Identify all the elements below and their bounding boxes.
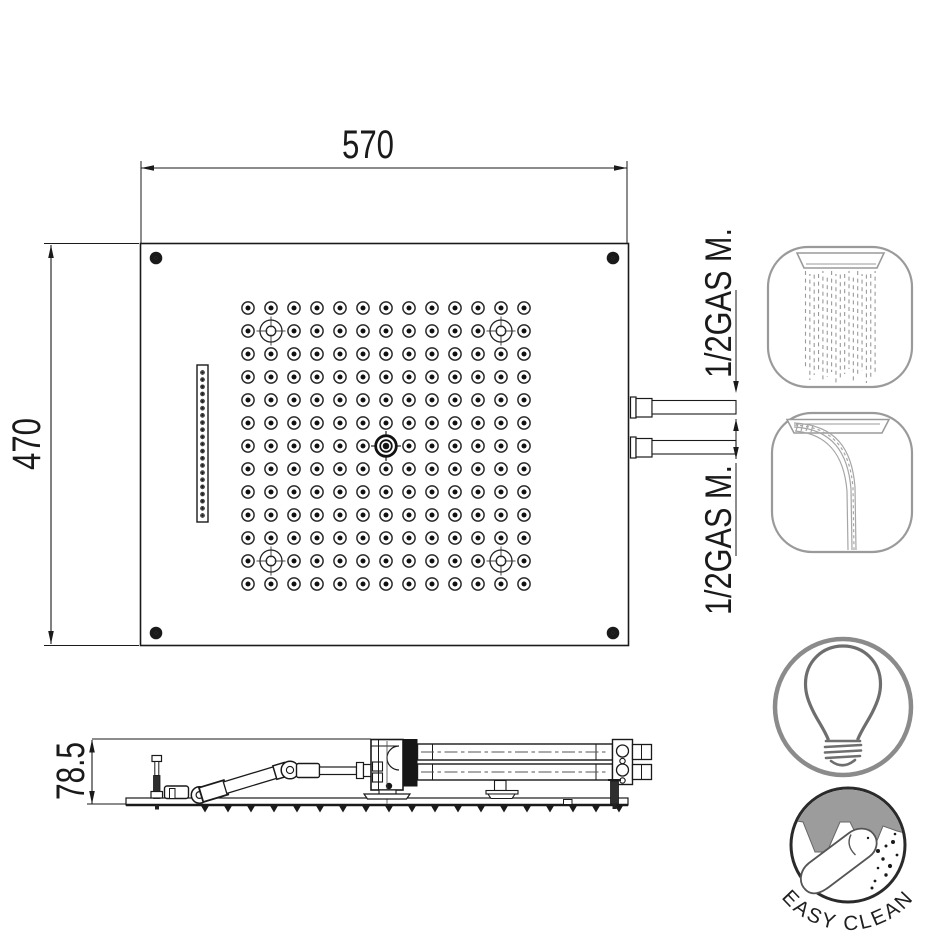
nozzle-dot [384, 513, 389, 518]
corner-screw-dot [612, 257, 614, 259]
nozzle-dot [407, 513, 412, 518]
nozzle-dot [292, 329, 297, 334]
side-nozzle [247, 806, 255, 813]
nozzle-dot [522, 352, 527, 357]
side-nozzle [270, 806, 278, 813]
limescale-dot [876, 849, 880, 853]
side-nozzle [385, 806, 393, 813]
swivel-arm [199, 762, 289, 802]
nozzle-dot [338, 375, 343, 380]
nozzle-dot [292, 467, 297, 472]
nozzle-dot [407, 329, 412, 334]
mounting-bracket [165, 786, 189, 799]
nozzle-dot [338, 559, 343, 564]
nozzle-dot [476, 375, 481, 380]
nozzle-dot [361, 467, 366, 472]
nozzle-dot [246, 513, 251, 518]
nozzle-dot [269, 490, 274, 495]
nozzle-dot [292, 559, 297, 564]
nozzle-dot [246, 375, 251, 380]
nozzle-dot [407, 467, 412, 472]
nozzle-dot [407, 490, 412, 495]
nozzle-dot [453, 375, 458, 380]
nozzle-dot [292, 352, 297, 357]
feed-pipes [418, 744, 613, 805]
arrowhead [141, 165, 154, 171]
side-nozzle-row [201, 806, 623, 813]
side-view: 78.5 [49, 739, 652, 813]
nozzle-dot [522, 329, 527, 334]
waterfall-icon [772, 413, 912, 552]
nozzle-dot [407, 582, 412, 587]
slot-hole-dot [202, 465, 203, 466]
nozzle-dot [453, 559, 458, 564]
mount-hole-center [266, 556, 276, 566]
rain-spray-icon [768, 247, 912, 387]
pipe-flange [636, 439, 652, 458]
nozzle-dot [338, 536, 343, 541]
nozzle-dot [246, 490, 251, 495]
nozzle-dot [384, 398, 389, 403]
nozzle-dot [315, 559, 320, 564]
corner-screw-dot [155, 257, 157, 259]
corner-screw-dot [612, 632, 614, 634]
nozzle-dot [315, 582, 320, 587]
nozzle-dot [292, 536, 297, 541]
nozzle-dot [361, 444, 366, 449]
width-dimension-label: 570 [342, 123, 394, 167]
connection-label-bottom: 1/2GAS M. [698, 465, 739, 615]
nozzle-dot [361, 352, 366, 357]
waterfall-stream [794, 423, 856, 550]
nozzle-dot [476, 398, 481, 403]
nozzle-dot [407, 559, 412, 564]
nozzle-dot [384, 467, 389, 472]
nozzle-dot [338, 490, 343, 495]
nozzle-dot [246, 582, 251, 587]
nozzle-dot [292, 375, 297, 380]
nozzle-dot [269, 513, 274, 518]
nozzle-dot [476, 536, 481, 541]
nozzle-dot [338, 398, 343, 403]
arrowhead [48, 631, 54, 644]
nozzle-dot [522, 306, 527, 311]
supply-tube [297, 763, 372, 779]
nozzle-dot [499, 306, 504, 311]
nozzle-dot [430, 582, 435, 587]
nozzle-dot [430, 421, 435, 426]
slot-hole-dot [202, 379, 203, 380]
nozzle-dot [269, 444, 274, 449]
nozzle-dot [407, 536, 412, 541]
nozzle-dot [246, 306, 251, 311]
limescale-dot [874, 880, 877, 883]
nozzle-dot [315, 421, 320, 426]
slot-hole-dot [202, 493, 203, 494]
nozzle-dot [430, 398, 435, 403]
nozzle-dot [338, 329, 343, 334]
height-dimension-label: 470 [5, 418, 49, 470]
nozzle-dot [246, 467, 251, 472]
nozzle-dot [453, 582, 458, 587]
nozzle-dot [269, 352, 274, 357]
nozzle-dot [246, 421, 251, 426]
pipe-flange [636, 399, 652, 418]
nozzle-dot [499, 536, 504, 541]
nozzle-dot [384, 352, 389, 357]
slot-hole-dot [202, 393, 203, 394]
nozzle-dot [246, 329, 251, 334]
nozzle-dot [522, 467, 527, 472]
side-nozzle [224, 806, 232, 813]
nozzle-dot [476, 352, 481, 357]
nozzle-dot [453, 329, 458, 334]
nozzle-dot [338, 306, 343, 311]
slot-hole-dot [202, 450, 203, 451]
nozzle-dot [361, 375, 366, 380]
nozzle-dot [361, 559, 366, 564]
nozzle-dot [453, 444, 458, 449]
nozzle-dot [246, 398, 251, 403]
nozzle-dot [384, 329, 389, 334]
nozzle-dot [315, 352, 320, 357]
limescale-dot [891, 840, 895, 844]
nozzle-dot [315, 329, 320, 334]
nozzle-dot [269, 582, 274, 587]
nozzle-dot [269, 306, 274, 311]
nozzle-dot [292, 306, 297, 311]
nozzle-dot [407, 444, 412, 449]
nozzle-dot [430, 513, 435, 518]
slot-hole-dot [202, 443, 203, 444]
nozzle-dot [315, 444, 320, 449]
nozzle-dot [384, 306, 389, 311]
nozzle-dot [384, 559, 389, 564]
rain-streams [806, 271, 876, 384]
nozzle-dot [246, 559, 251, 564]
pipe-end-fittings [613, 740, 652, 785]
nozzle-dot [338, 444, 343, 449]
nozzle-dot [315, 467, 320, 472]
nozzle-dot [246, 536, 251, 541]
nozzle-dot [499, 513, 504, 518]
nozzle-dot [269, 421, 274, 426]
limescale-dot [884, 873, 887, 876]
nozzle-dot [499, 352, 504, 357]
nozzle-dot [269, 398, 274, 403]
slot-hole-dot [202, 400, 203, 401]
nozzle-dot [430, 329, 435, 334]
nozzle-dot [246, 352, 251, 357]
nozzle-dot [407, 306, 412, 311]
nozzle-dot [522, 490, 527, 495]
nozzle-dot [292, 513, 297, 518]
limescale-dot [867, 837, 869, 839]
nozzle-dot [384, 375, 389, 380]
light-bulb-icon [775, 639, 911, 775]
slot-hole-dot [202, 386, 203, 387]
nozzle-dot [476, 582, 481, 587]
pipe-body [652, 441, 736, 455]
side-nozzle [201, 806, 209, 813]
side-nozzle [546, 806, 554, 813]
limescale-dot [896, 854, 899, 857]
nozzle-dot [499, 490, 504, 495]
limescale-dot [885, 845, 888, 848]
top-view: 570 470 [5, 123, 739, 646]
arrowhead [614, 165, 627, 171]
nozzle-dot [522, 375, 527, 380]
technical-drawing-page: 570 470 [0, 0, 950, 950]
nozzle-dot [407, 375, 412, 380]
arrowhead [733, 419, 739, 431]
nozzle-dot [430, 306, 435, 311]
nozzle-dot [453, 352, 458, 357]
nozzle-dot [384, 536, 389, 541]
pipe-flange-lip [631, 397, 637, 418]
nozzle-dot [453, 398, 458, 403]
nozzle-dot [384, 490, 389, 495]
nozzle-dot [269, 467, 274, 472]
mount-hole-center [496, 556, 506, 566]
nozzle-dot [499, 467, 504, 472]
nozzle-dot [453, 536, 458, 541]
side-nozzle [362, 806, 370, 813]
slot-hole-dot [202, 501, 203, 502]
nozzle-dot [453, 421, 458, 426]
nozzle-dot [476, 513, 481, 518]
nozzle-dot [246, 444, 251, 449]
nozzle-dot [315, 306, 320, 311]
slot-hole-dot [202, 508, 203, 509]
connection-label-top: 1/2GAS M. [698, 228, 739, 378]
nozzle-dot [476, 329, 481, 334]
nozzle-dot [499, 375, 504, 380]
nozzle-dot [430, 352, 435, 357]
nozzle-dot [499, 444, 504, 449]
side-nozzle [500, 806, 508, 813]
slot-hole-dot [202, 372, 203, 373]
nozzle-dot [292, 444, 297, 449]
nozzle-dot [522, 513, 527, 518]
nozzle-dot [430, 444, 435, 449]
showerhead-profile [797, 253, 884, 268]
nozzle-dot [361, 582, 366, 587]
nozzle-dot [430, 375, 435, 380]
nozzle-dot [315, 536, 320, 541]
nozzle-dot [361, 490, 366, 495]
nozzle-dot [407, 421, 412, 426]
side-nozzle [293, 806, 301, 813]
nozzle-dot [315, 375, 320, 380]
feature-icons: EASY CLEAN [768, 247, 919, 935]
nozzle-dot [430, 559, 435, 564]
nozzle-dot [453, 490, 458, 495]
slot-hole-dot [202, 479, 203, 480]
waterfall-slot-holes [201, 371, 205, 518]
mount-hole-center [266, 326, 276, 336]
nozzle-dot [476, 444, 481, 449]
nozzle-dot [338, 421, 343, 426]
height-dimension: 470 [5, 244, 139, 646]
slot-hole-dot [202, 472, 203, 473]
center-nozzle-dot [383, 443, 388, 448]
slot-hole-dot [202, 436, 203, 437]
nozzle-dot [292, 421, 297, 426]
connection-pipes: 1/2GAS M. 1/2GAS M. [631, 228, 740, 615]
nozzle-dot [292, 490, 297, 495]
nozzle-dot [338, 467, 343, 472]
nozzle-dot [453, 513, 458, 518]
nozzle-dot [522, 398, 527, 403]
nozzle-dot [315, 490, 320, 495]
nozzle-dot [338, 352, 343, 357]
pipe-flange-lip [631, 437, 637, 458]
bulb-base [825, 741, 861, 765]
nozzle-dot [476, 559, 481, 564]
nozzle-dot [453, 467, 458, 472]
arrowhead [733, 381, 739, 393]
nozzle-dot [522, 444, 527, 449]
limescale-dot [888, 864, 892, 868]
side-nozzle [339, 806, 347, 813]
nozzle-dot [476, 421, 481, 426]
nozzle-dot [338, 582, 343, 587]
nozzle-dot [269, 375, 274, 380]
bulb-glass [806, 646, 881, 740]
nozzle-dot [384, 582, 389, 587]
valve-black-band [403, 739, 418, 787]
valve-block [364, 739, 418, 804]
nozzle-dot [476, 467, 481, 472]
nozzle-dot [499, 421, 504, 426]
nozzle-dot [315, 513, 320, 518]
nozzle-dot [269, 536, 274, 541]
slot-hole-dot [202, 458, 203, 459]
nozzle-dot [407, 398, 412, 403]
nozzle-dot [292, 582, 297, 587]
pipe-body [652, 401, 736, 415]
side-nozzle [316, 806, 324, 813]
nozzle-dot [338, 513, 343, 518]
nozzle-dot [384, 421, 389, 426]
nozzle-dot [361, 398, 366, 403]
nozzle-dot [522, 421, 527, 426]
slot-hole-dot [202, 515, 203, 516]
nozzle-dot [407, 352, 412, 357]
limescale-dot [894, 833, 897, 836]
nozzle-dot [453, 306, 458, 311]
side-nozzle [431, 806, 439, 813]
nozzle-dot [430, 490, 435, 495]
nozzle-dot [361, 513, 366, 518]
side-nozzle [569, 806, 577, 813]
nozzle-dot [522, 582, 527, 587]
nozzle-dot [522, 559, 527, 564]
nozzle-dot [430, 467, 435, 472]
side-nozzle [477, 806, 485, 813]
nozzle-dot [361, 536, 366, 541]
nozzle-dot [476, 306, 481, 311]
nozzle-dot [361, 421, 366, 426]
nozzle-dot [361, 306, 366, 311]
nozzle-dot [499, 582, 504, 587]
depth-dimension-label: 78.5 [49, 742, 93, 800]
limescale-dot [871, 887, 874, 890]
limescale-dot [881, 857, 884, 860]
slot-hole-dot [202, 486, 203, 487]
slot-hole-dot [202, 408, 203, 409]
nozzle-dot [476, 490, 481, 495]
nozzle-dot [361, 329, 366, 334]
side-nozzle [592, 806, 600, 813]
mount-hole-center [496, 326, 506, 336]
limescale-dot [877, 867, 880, 870]
nozzle-dot [499, 398, 504, 403]
slot-hole-dot [202, 429, 203, 430]
side-nozzle [523, 806, 531, 813]
slot-hole-dot [202, 415, 203, 416]
nozzle-dot [292, 398, 297, 403]
slot-hole-dot [202, 422, 203, 423]
nozzle-dot [430, 536, 435, 541]
side-nozzle [408, 806, 416, 813]
nozzle-dot [315, 398, 320, 403]
side-nozzle [454, 806, 462, 813]
arrowhead [48, 245, 54, 258]
width-dimension: 570 [141, 123, 627, 243]
nozzle-dot [522, 536, 527, 541]
easy-clean-icon: EASY CLEAN [777, 778, 918, 935]
corner-screw-dot [155, 632, 157, 634]
